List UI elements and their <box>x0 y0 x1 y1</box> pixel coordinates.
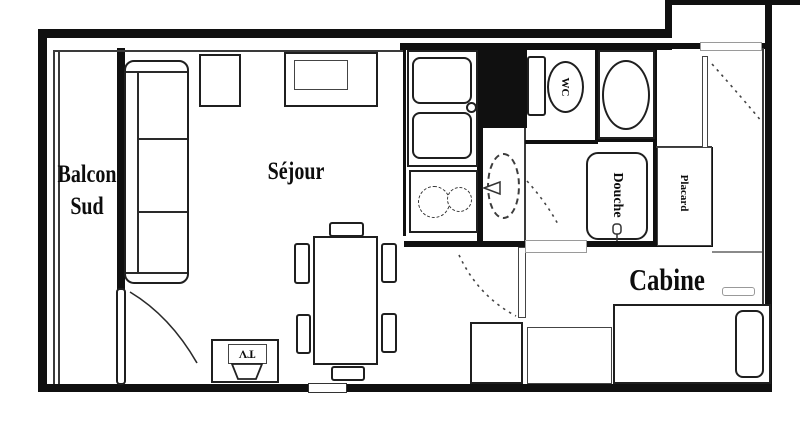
shower-door-arc <box>527 181 559 226</box>
balcony-door-arc <box>130 292 197 363</box>
room-label-placard: Placard <box>678 175 690 212</box>
shower-drain-icon <box>613 224 621 234</box>
tv-label: TV <box>239 347 256 362</box>
room-label-douche: Douche <box>609 172 625 217</box>
room-label-cabine: Cabine <box>629 262 705 298</box>
floor-plan: Balcon Sud Séjour Cabine WC Douche Placa… <box>0 0 800 422</box>
water-heater-valve-icon <box>484 182 500 194</box>
room-label-balcon-line2: Sud <box>70 193 103 221</box>
cabine-door-arc <box>459 255 516 316</box>
entrance-door-arc <box>712 64 762 122</box>
room-label-sejour: Séjour <box>268 158 325 186</box>
room-label-balcon-line1: Balcon <box>58 161 117 189</box>
tv-stand-base <box>232 364 262 379</box>
room-label-wc: WC <box>559 78 571 97</box>
